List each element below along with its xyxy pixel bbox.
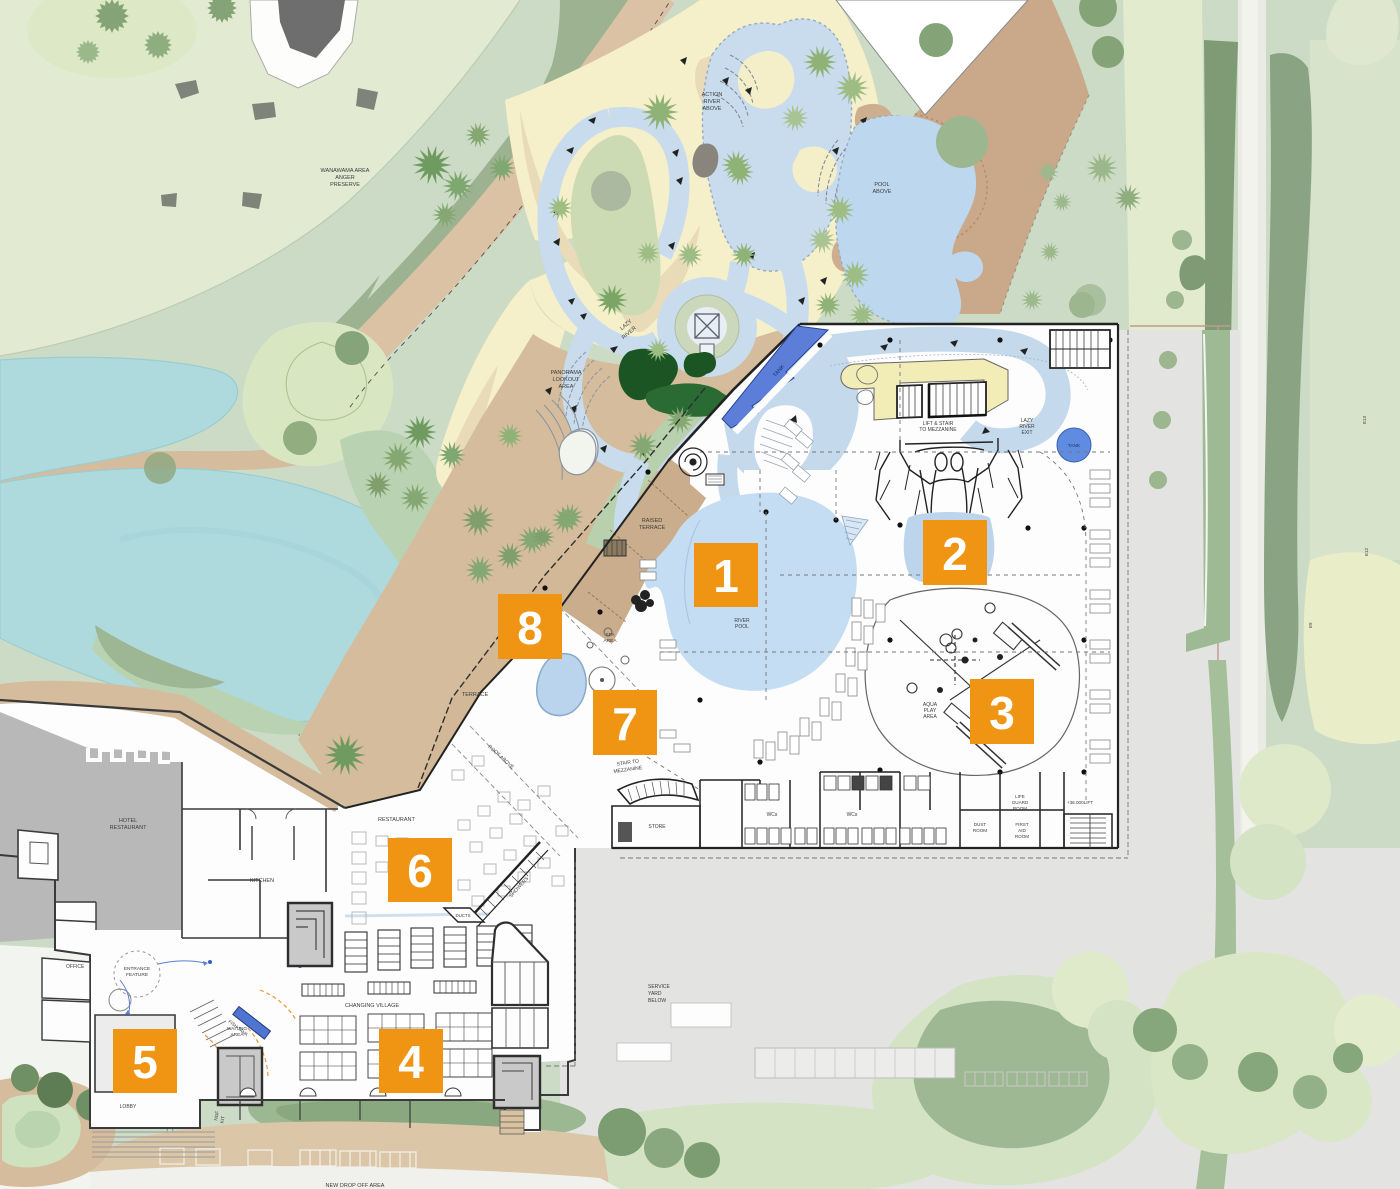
svg-text:RAISED: RAISED xyxy=(642,518,663,524)
svg-text:7: 7 xyxy=(612,698,638,750)
svg-text:ROOM: ROOM xyxy=(1013,806,1027,811)
svg-text:KITCHEN: KITCHEN xyxy=(250,878,274,884)
svg-text:4: 4 xyxy=(398,1036,424,1088)
svg-text:ABOVE: ABOVE xyxy=(873,189,892,195)
svg-text:BELOW: BELOW xyxy=(648,998,666,1004)
svg-text:PRESERVE: PRESERVE xyxy=(330,182,360,188)
svg-text:WANAWAMA AREA: WANAWAMA AREA xyxy=(321,168,370,174)
svg-text:RIVER: RIVER xyxy=(704,99,721,105)
svg-text:POOL: POOL xyxy=(874,182,889,188)
svg-text:POOL: POOL xyxy=(735,624,749,630)
svg-text:HOTEL: HOTEL xyxy=(119,818,137,824)
svg-text:FEATURE: FEATURE xyxy=(126,972,148,978)
svg-text:DUCTS: DUCTS xyxy=(455,913,470,918)
svg-text:TERRACE: TERRACE xyxy=(639,525,666,531)
svg-text:ROOM: ROOM xyxy=(1015,834,1029,839)
svg-text:YARD: YARD xyxy=(648,991,662,997)
svg-text:RESTAURANT: RESTAURANT xyxy=(378,817,416,823)
svg-text:8: 8 xyxy=(517,602,543,654)
svg-text:LOBBY: LOBBY xyxy=(120,1104,137,1110)
svg-text:ENTRANCE: ENTRANCE xyxy=(124,966,150,972)
svg-text:RESTAURANT: RESTAURANT xyxy=(110,825,148,831)
svg-text:E9: E9 xyxy=(1308,622,1313,628)
svg-text:STORE: STORE xyxy=(648,824,666,830)
svg-text:NEW DROP OFF AREA: NEW DROP OFF AREA xyxy=(326,1183,385,1189)
svg-text:2: 2 xyxy=(942,528,968,580)
svg-text:SPA: SPA xyxy=(605,632,615,638)
svg-text:GUARD: GUARD xyxy=(1012,800,1029,805)
svg-text:TO MEZZANINE: TO MEZZANINE xyxy=(919,427,957,433)
svg-text:ROOM: ROOM xyxy=(973,828,987,833)
svg-text:PANORAMA: PANORAMA xyxy=(550,370,581,376)
svg-text:TANK: TANK xyxy=(1068,443,1081,449)
svg-text:LOOKOUT: LOOKOUT xyxy=(553,377,581,383)
svg-text:ABOVE: ABOVE xyxy=(703,106,722,112)
svg-text:ANGER: ANGER xyxy=(335,175,355,181)
svg-text:OFFICE: OFFICE xyxy=(66,964,85,970)
svg-text:TERRACE: TERRACE xyxy=(462,692,489,698)
svg-text:FIRST: FIRST xyxy=(1015,822,1028,827)
svg-text:AREA: AREA xyxy=(603,638,617,644)
svg-text:1: 1 xyxy=(713,550,739,602)
svg-text:E12: E12 xyxy=(1364,547,1369,556)
svg-text:WCs: WCs xyxy=(767,812,778,818)
svg-text:AREA: AREA xyxy=(923,714,937,720)
svg-text:E13: E13 xyxy=(1362,415,1367,424)
svg-text:5: 5 xyxy=(132,1036,158,1088)
svg-text:LIFE: LIFE xyxy=(1015,794,1025,799)
svg-text:6: 6 xyxy=(407,845,433,897)
svg-text:EXIT: EXIT xyxy=(1021,430,1032,436)
svg-text:+36.000LIFT: +36.000LIFT xyxy=(1067,800,1093,805)
svg-text:AID: AID xyxy=(1018,828,1026,833)
svg-text:AREA: AREA xyxy=(559,384,574,390)
svg-text:DUST: DUST xyxy=(974,822,987,827)
svg-text:WCs: WCs xyxy=(847,812,858,818)
svg-text:CHANGING VILLAGE: CHANGING VILLAGE xyxy=(345,1003,399,1009)
svg-text:ACTION: ACTION xyxy=(702,92,723,98)
svg-text:SERVICE: SERVICE xyxy=(648,984,671,990)
svg-text:3: 3 xyxy=(989,687,1015,739)
